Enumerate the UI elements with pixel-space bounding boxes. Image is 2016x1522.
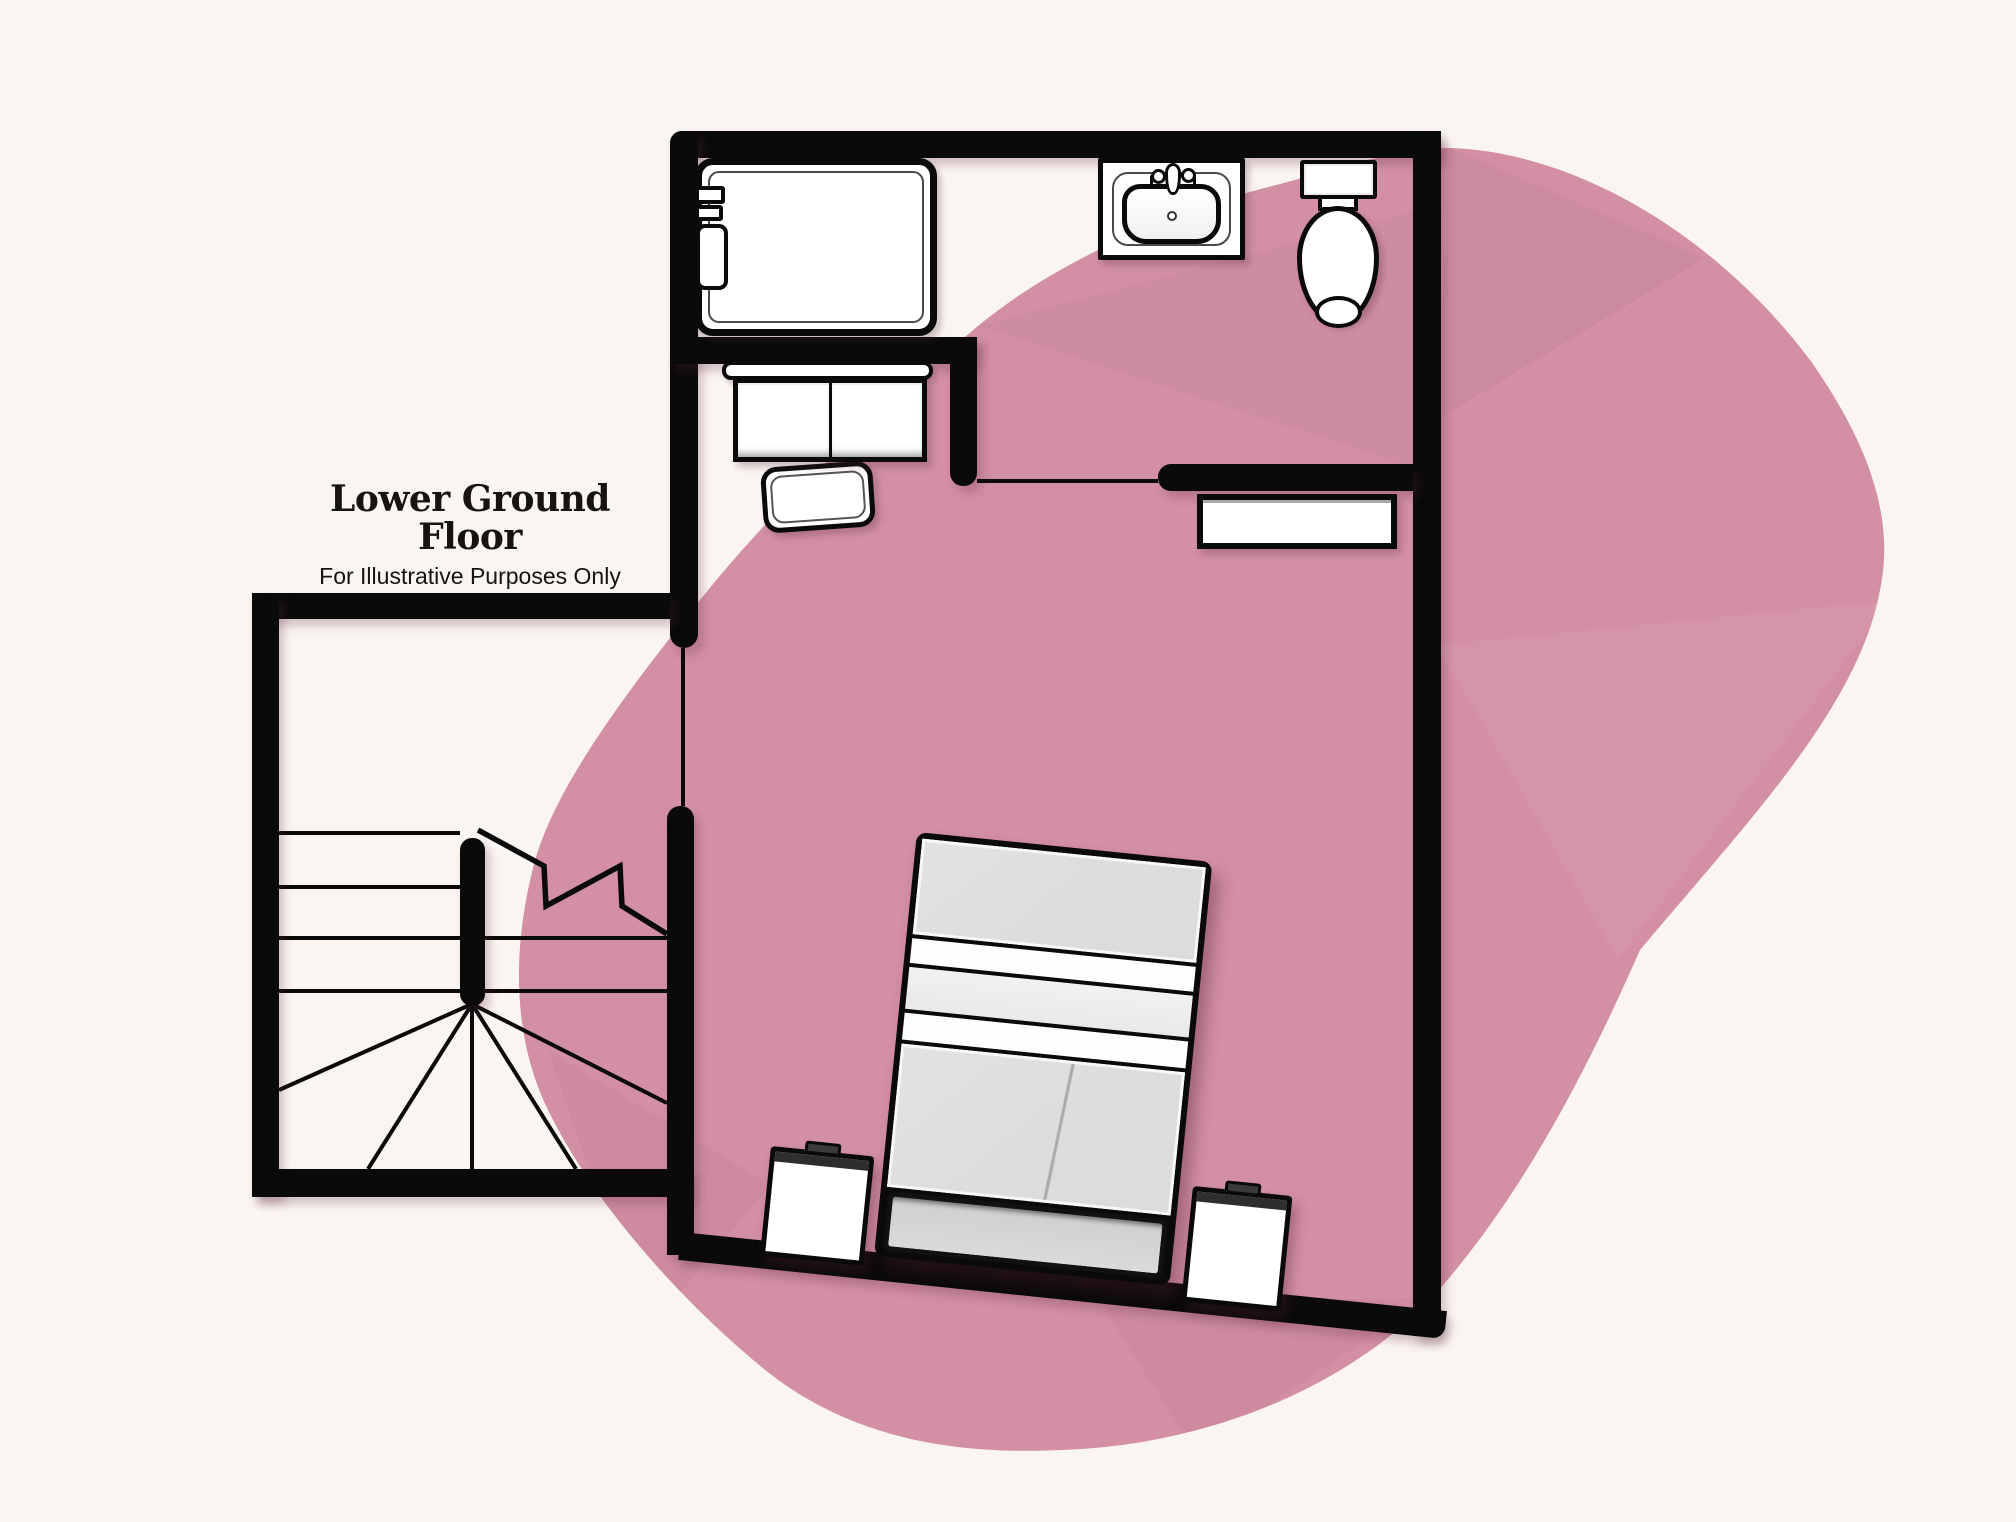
floor-title: Lower Ground Floor [280,481,660,557]
title-block: Lower Ground Floor For Illustrative Purp… [280,481,660,588]
wall-stairs-top [252,593,670,619]
sink-faucet-handle-left [1151,169,1166,184]
wall-right [1413,131,1441,1336]
bathtub-icon [695,158,937,336]
bath-mat-icon [760,460,876,534]
door-opening-line-stairs [681,648,685,806]
wall-shelf-icon [1197,494,1397,549]
wall-bedroom-left [667,806,694,1255]
wall-stairs-left [252,593,279,1197]
vanity-door-right [832,383,923,457]
door-opening-line-hall [977,479,1158,483]
vanity-door-left [738,383,829,457]
bath-taps-icon [695,205,723,221]
stair-newel-wall [460,838,485,1006]
wall-stairs-bottom [252,1169,692,1197]
bed-duvet-panel [887,1044,1185,1216]
double-bed-icon [874,832,1213,1286]
floorplan-page: Lower Ground Floor For Illustrative Purp… [0,0,2016,1522]
toilet-tank [1300,160,1377,199]
nightstand-icon [760,1146,875,1266]
shower-control-icon [696,224,728,290]
wall-bathroom-left [670,131,698,648]
bathtub-inner-line [708,171,924,323]
floor-subtitle: For Illustrative Purposes Only [280,565,660,588]
vanity-unit-icon [733,378,927,462]
nightstand-icon [1181,1186,1292,1312]
wall-bathroom-bottom [670,337,977,364]
wall-bathroom-return [950,337,977,486]
stair-break-line [478,830,667,934]
toilet-bowl-lip [1315,296,1362,328]
wall-top [670,131,1441,158]
sink-faucet-handle-right [1181,168,1196,183]
sink-drain-icon [1167,211,1177,221]
wall-hall-segment [1158,464,1413,491]
bath-taps-icon [695,186,725,204]
bath-mat-inner-line [769,470,866,524]
